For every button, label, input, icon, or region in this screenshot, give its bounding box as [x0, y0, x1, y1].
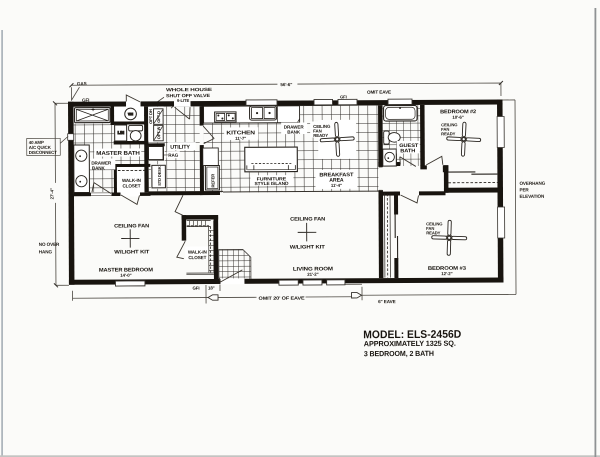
svg-text:OMIT EAVE: OMIT EAVE	[367, 90, 391, 95]
svg-text:PER: PER	[519, 187, 529, 192]
svg-text:UTILITY: UTILITY	[170, 145, 190, 151]
svg-text:BANK: BANK	[287, 130, 301, 135]
svg-text:9-LITE: 9-LITE	[177, 98, 190, 103]
svg-text:STYLE ISLAND: STYLE ISLAND	[254, 181, 289, 186]
svg-text:6" EAVE: 6" EAVE	[378, 299, 396, 304]
svg-text:W/LIGHT KIT: W/LIGHT KIT	[114, 249, 149, 255]
svg-text:GAS: GAS	[77, 81, 87, 86]
svg-text:RAG: RAG	[168, 153, 178, 158]
svg-text:56'-6": 56'-6"	[280, 82, 292, 87]
svg-text:CEILING FAN: CEILING FAN	[290, 216, 326, 222]
svg-text:READY: READY	[441, 131, 455, 136]
svg-text:WALK-IN: WALK-IN	[188, 250, 208, 255]
svg-text:OMIT 20' OF EAVE: OMIT 20' OF EAVE	[259, 296, 305, 301]
svg-text:GFI: GFI	[340, 94, 347, 99]
svg-text:BATH: BATH	[400, 148, 416, 154]
svg-text:GFI: GFI	[82, 98, 89, 103]
svg-text:ELEVATION: ELEVATION	[519, 194, 545, 199]
svg-text:27'-4": 27'-4"	[49, 188, 54, 199]
svg-text:STD DESK: STD DESK	[157, 166, 162, 186]
svg-text:OPT W: OPT W	[156, 126, 161, 139]
svg-text:21'-2": 21'-2"	[307, 272, 318, 277]
svg-text:10'-6": 10'-6"	[452, 115, 463, 120]
svg-text:NO OVER: NO OVER	[39, 242, 60, 247]
svg-text:READY: READY	[426, 230, 440, 235]
svg-text:11'-7": 11'-7"	[235, 136, 246, 141]
svg-text:14'-0": 14'-0"	[120, 273, 131, 278]
svg-text:CLOSET: CLOSET	[188, 255, 206, 260]
svg-text:3 BEDROOM, 2 BATH: 3 BEDROOM, 2 BATH	[364, 349, 434, 358]
svg-text:LIN: LIN	[118, 130, 125, 135]
svg-text:BANK: BANK	[92, 166, 106, 171]
svg-text:CLOSET: CLOSET	[122, 183, 140, 188]
svg-text:APPROXIMATELY 1325 SQ.: APPROXIMATELY 1325 SQ.	[364, 339, 456, 348]
svg-text:OPT D: OPT D	[156, 111, 161, 123]
svg-text:W/LIGHT KIT: W/LIGHT KIT	[290, 244, 325, 250]
svg-text:OVERHANG: OVERHANG	[519, 181, 545, 186]
svg-text:WH: WH	[128, 112, 133, 116]
svg-text:READY: READY	[313, 133, 328, 138]
svg-text:WALK-IN: WALK-IN	[122, 178, 142, 183]
svg-text:OPT DH: OPT DH	[148, 109, 153, 124]
svg-text:CEILING FAN: CEILING FAN	[114, 223, 150, 229]
svg-text:18": 18"	[208, 286, 215, 291]
svg-text:DISCONNECT: DISCONNECT	[29, 150, 57, 155]
svg-text:WHOLE HOUSE: WHOLE HOUSE	[166, 87, 212, 92]
svg-text:REFER: REFER	[210, 174, 215, 188]
svg-text:HANG: HANG	[39, 249, 53, 254]
svg-text:12'-2": 12'-2"	[441, 271, 452, 276]
svg-text:11'-4": 11'-4"	[331, 183, 342, 188]
svg-text:GFI: GFI	[192, 286, 199, 291]
svg-text:MASTER BATH: MASTER BATH	[96, 151, 140, 157]
